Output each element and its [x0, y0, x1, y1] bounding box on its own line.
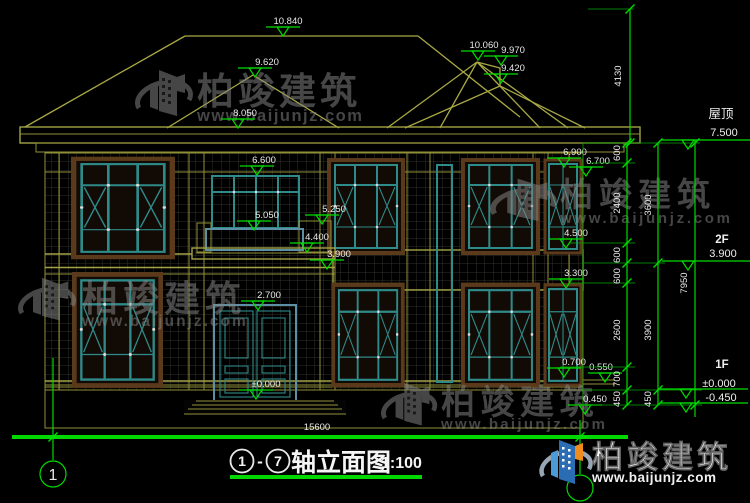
level-label-1f: 1F	[715, 359, 728, 371]
title-axis-start: 1	[238, 453, 246, 469]
elev-label: 5.250	[322, 204, 346, 215]
elev-label: 10.840	[273, 16, 302, 27]
axis-bubble-1-number: 1	[49, 467, 58, 484]
level-label-2f: 2F	[715, 234, 728, 246]
dim-label: 7950	[679, 272, 690, 293]
watermark-url-text: www.baijunjz.com	[440, 416, 607, 433]
watermark-url-text: www.baijunjz.com	[196, 107, 363, 125]
elev-label: ±0.000	[252, 379, 281, 390]
elev-label: 10.060	[469, 40, 498, 51]
title-axis-end: 7	[274, 453, 282, 469]
dim-label: 3600	[643, 194, 654, 215]
dim-label: 450	[612, 391, 623, 407]
elev-label: 2.700	[257, 290, 281, 301]
dim-label: 700	[612, 371, 623, 387]
elev-label: 8.050	[233, 108, 257, 119]
elev-label: 0.550	[589, 362, 613, 373]
window-1f-corner	[545, 285, 581, 385]
dim-label: 2400	[612, 192, 623, 213]
watermark-url-text: www.baijunjz.com	[81, 313, 248, 330]
elev-label: 0.450	[583, 394, 607, 405]
level-value-2f: 3.900	[709, 248, 737, 260]
elev-label: 5.050	[255, 210, 279, 221]
dim-label: 450	[643, 391, 654, 407]
window-1f-right	[463, 285, 538, 385]
elev-label: 4.500	[564, 228, 588, 239]
elev-label: 3.900	[327, 249, 351, 260]
level-label-roof: 屋顶	[708, 107, 734, 121]
elev-label: 9.620	[255, 57, 279, 68]
title-scale: 1:100	[381, 455, 422, 472]
elev-label: 6.700	[586, 156, 610, 167]
watermark-brand-text: 柏竣建筑	[197, 70, 361, 112]
dim-label: 2600	[612, 319, 623, 340]
elev-label: 4.400	[305, 232, 329, 243]
title-text: 轴立面图	[291, 448, 391, 477]
dim-label: 600	[612, 247, 623, 263]
brand-url: www.baijunjz.com	[591, 470, 717, 485]
dim-label: 4130	[613, 65, 624, 86]
title-dash: -	[257, 452, 263, 471]
elev-label: 3.300	[564, 268, 588, 279]
elev-label: 6.600	[252, 155, 276, 166]
level-value-roof: 7.500	[710, 127, 738, 139]
cad-elevation-drawing: 柏竣建筑 www.baijunjz.com 柏竣建筑 www.baijunjz.…	[0, 0, 750, 503]
elev-label: 0.700	[562, 357, 586, 368]
window-2f-left	[74, 159, 173, 257]
level-value-1f-below: -0.450	[705, 392, 736, 404]
dim-total-width: 15600	[304, 422, 330, 433]
title-underline	[230, 475, 422, 479]
elev-label: 9.420	[501, 63, 525, 74]
watermark-brand-text: 柏竣建筑	[560, 176, 716, 213]
window-1f-mid-right	[333, 285, 403, 385]
elev-label: 9.970	[501, 45, 525, 56]
dim-label: 3900	[643, 319, 654, 340]
elevation-canvas: 柏竣建筑 www.baijunjz.com 柏竣建筑 www.baijunjz.…	[0, 0, 750, 503]
dim-label: 600	[612, 268, 623, 284]
level-value-1f-zero: ±0.000	[702, 378, 736, 390]
brand-logo-colored: 柏竣建筑 www.baijunjz.com	[542, 440, 732, 485]
dim-label: 600	[612, 145, 623, 161]
entrance-steps	[184, 400, 346, 415]
